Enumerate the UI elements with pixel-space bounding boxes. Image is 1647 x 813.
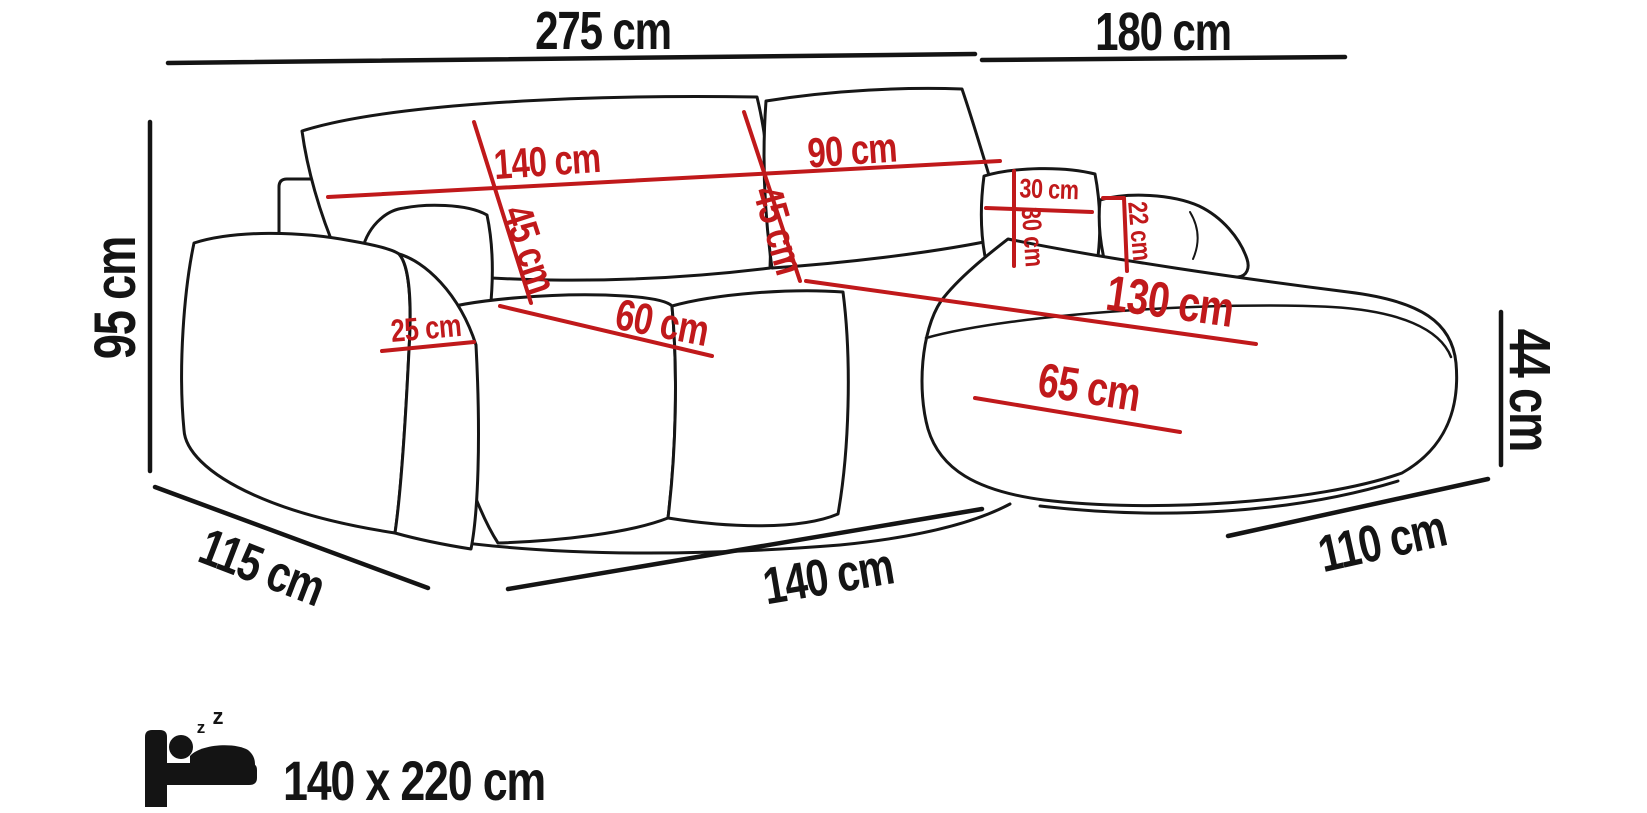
label-left-height: 95 cm <box>84 237 149 359</box>
diagram-canvas: 140 cm 90 cm 45 cm 45 cm 30 cm 30 cm 22 … <box>0 0 1647 813</box>
bed-base <box>167 763 257 785</box>
label-right-seat-height: 44 cm <box>1497 329 1562 451</box>
label-left-backrest-width: 140 cm <box>492 134 601 188</box>
label-bottom-left-depth: 115 cm <box>192 517 333 617</box>
sofa-left-armrest <box>182 233 411 533</box>
label-sleeping-size: 140 x 220 cm <box>283 749 545 812</box>
sleeper-head <box>169 735 193 759</box>
label-right-armrest-height: 22 cm <box>1122 200 1157 262</box>
sleeper-blanket <box>190 745 255 765</box>
label-top-right-width: 180 cm <box>1095 2 1231 62</box>
sleep-z-small: z <box>197 718 206 737</box>
sleep-z-large: z <box>213 704 224 729</box>
label-left-armrest-width: 25 cm <box>389 308 462 349</box>
label-top-left-width: 275 cm <box>535 1 671 61</box>
sofa-dimension-diagram: 140 cm 90 cm 45 cm 45 cm 30 cm 30 cm 22 … <box>0 0 1647 813</box>
label-pillow-width: 30 cm <box>1019 174 1079 206</box>
label-pillow-height: 30 cm <box>1015 206 1049 267</box>
label-right-backrest-width: 90 cm <box>806 124 898 177</box>
bed-headboard <box>145 730 167 807</box>
sleeping-bed-icon: z z <box>145 704 257 807</box>
